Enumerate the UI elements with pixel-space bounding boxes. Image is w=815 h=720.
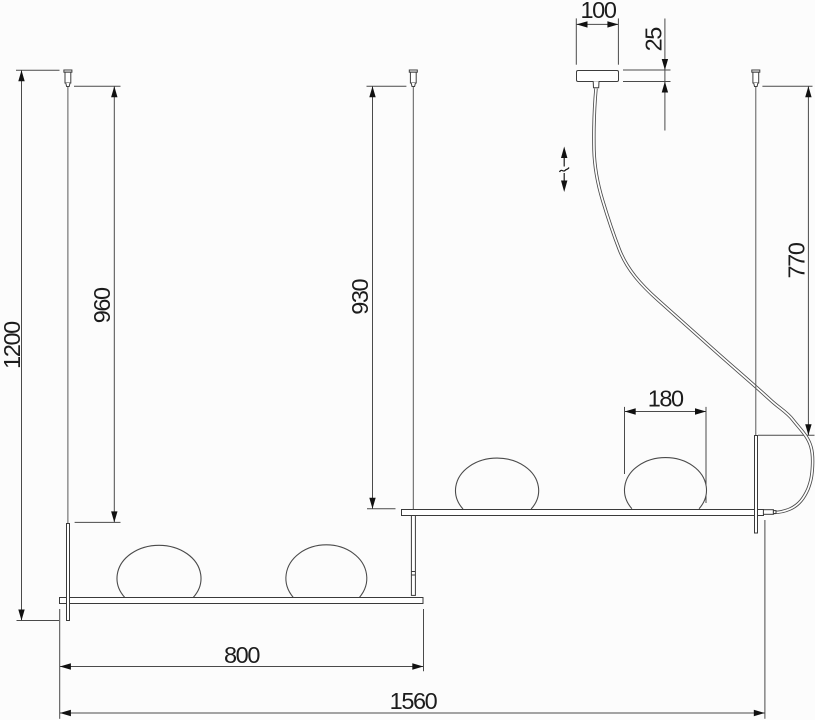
svg-text:800: 800 bbox=[224, 642, 260, 668]
svg-text:930: 930 bbox=[347, 278, 373, 314]
svg-text:960: 960 bbox=[89, 287, 115, 323]
svg-text:770: 770 bbox=[784, 242, 810, 278]
svg-text:100: 100 bbox=[580, 0, 616, 23]
svg-text:1200: 1200 bbox=[0, 321, 25, 369]
svg-text:180: 180 bbox=[648, 386, 684, 412]
svg-text:1560: 1560 bbox=[390, 688, 438, 714]
svg-text:25: 25 bbox=[641, 27, 667, 52]
